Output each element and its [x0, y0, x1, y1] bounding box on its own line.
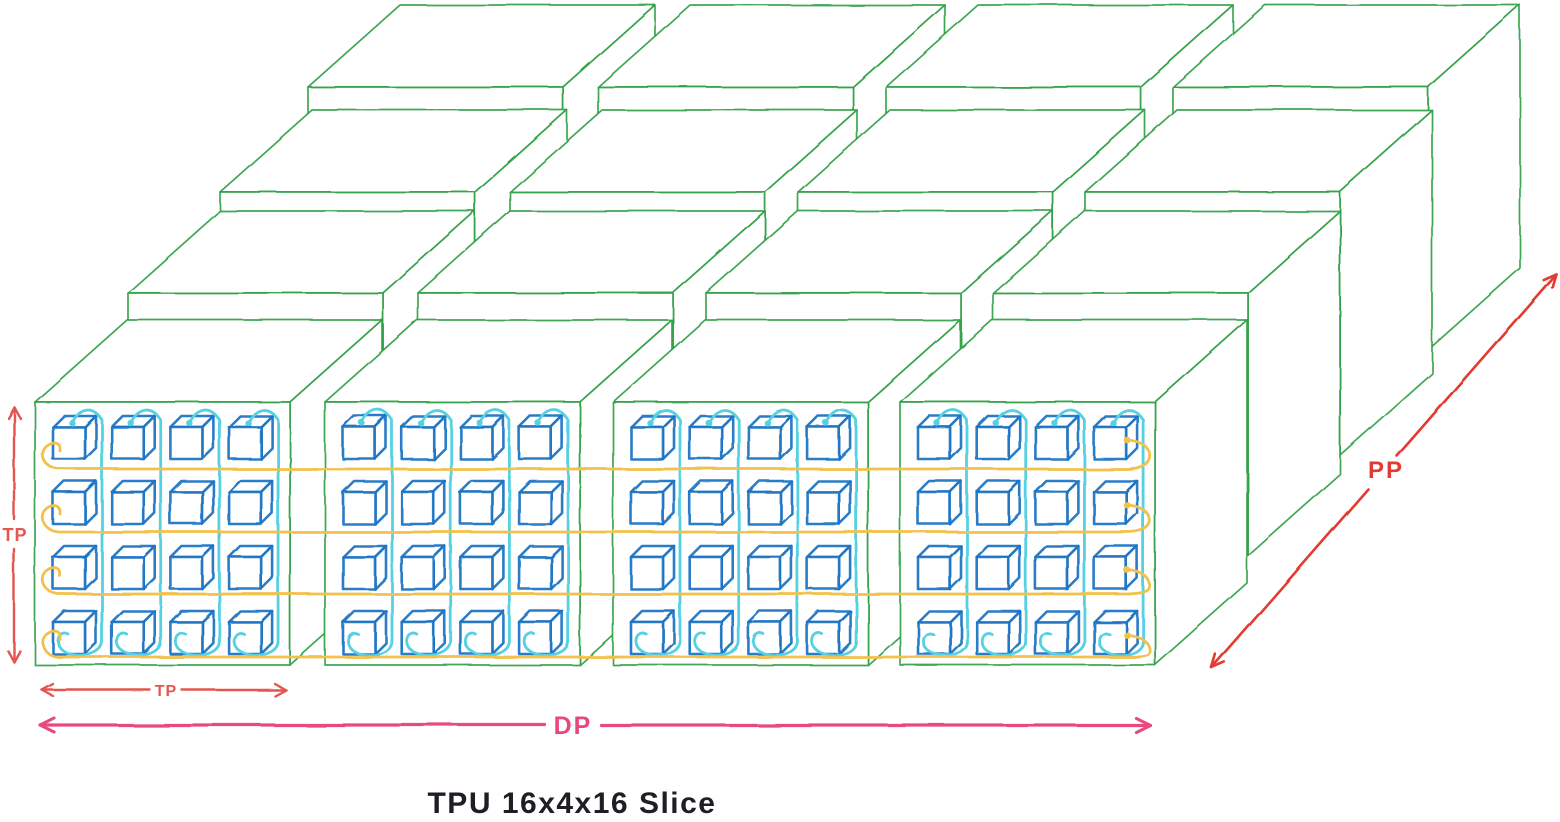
chip-front-face [807, 557, 839, 589]
chip-front-face [690, 492, 722, 524]
chip-front-face [519, 492, 551, 524]
chip-front-face [343, 492, 375, 524]
chip-front-face [1035, 557, 1067, 589]
chip-front-face [807, 492, 839, 524]
tp-ring-endpoint-dot [993, 420, 999, 426]
chip-front-face [519, 557, 551, 589]
chip-front-face [977, 427, 1009, 459]
chip-front-face [229, 557, 261, 589]
dp-axis-label: DP [554, 712, 593, 740]
chip-front-face [690, 427, 722, 459]
chip-front-face [977, 492, 1009, 524]
chip-front-face [631, 427, 663, 459]
tp-horizontal-label: TP [155, 683, 177, 700]
chip-front-face [748, 557, 780, 589]
tp-ring-endpoint-dot [823, 420, 829, 426]
tp-ring-endpoint-dot [706, 420, 712, 426]
chip-front-face [343, 427, 375, 459]
chip-front-face [402, 492, 434, 524]
tp-ring-endpoint-dot [418, 420, 424, 426]
chip-front-face [229, 492, 261, 524]
chip-front-face [977, 557, 1009, 589]
tp-ring-endpoint-dot [359, 420, 365, 426]
chip-front-face [343, 557, 375, 589]
chip-front-face [112, 492, 144, 524]
chip-front-face [690, 557, 722, 589]
chip-front-face [229, 427, 261, 459]
chip-front-face [1094, 557, 1126, 589]
tpu-slice-diagram: TP TP DP PP TPU 16x4x16 Slice [0, 0, 1560, 822]
chip-front-face [1094, 427, 1126, 459]
dp-ring-endpoint-dot [1124, 502, 1131, 509]
tp-ring-endpoint-dot [1110, 420, 1116, 426]
dp-ring-endpoint-dot [1124, 567, 1131, 574]
diagram-title: TPU 16x4x16 Slice [427, 787, 716, 820]
chip-front-face [1094, 492, 1126, 524]
chip-front-face [631, 557, 663, 589]
tp-ring-endpoint-dot [934, 420, 940, 426]
chip-front-face [748, 492, 780, 524]
chip-front-face [170, 492, 202, 524]
tp-ring-endpoint-dot [476, 420, 482, 426]
chip-front-face [460, 557, 492, 589]
chip-front-face [112, 557, 144, 589]
tp-ring-endpoint-dot [535, 420, 541, 426]
chip-front-face [112, 427, 144, 459]
chip-front-face [1035, 492, 1067, 524]
chip-front-face [807, 427, 839, 459]
chip-front-face [460, 492, 492, 524]
tp-ring-endpoint-dot [1051, 420, 1057, 426]
chip-front-face [170, 427, 202, 459]
chip-front-face [402, 427, 434, 459]
tp-ring-endpoint-dot [128, 420, 134, 426]
tp-ring-endpoint-dot [69, 420, 75, 426]
chip-front-face [519, 427, 551, 459]
chip-front-face [402, 557, 434, 589]
pp-axis-label: PP [1368, 457, 1404, 484]
chip-front-face [748, 427, 780, 459]
chip-front-face [1035, 427, 1067, 459]
tp-vertical-label: TP [2, 525, 27, 545]
chip-front-face [918, 557, 950, 589]
chip-front-face [918, 427, 950, 459]
chip-front-face [918, 492, 950, 524]
tp-ring-endpoint-dot [647, 420, 653, 426]
chip-front-face [170, 557, 202, 589]
tp-ring-endpoint-dot [764, 420, 770, 426]
tp-ring-endpoint-dot [186, 420, 192, 426]
chip-front-face [53, 557, 85, 589]
tp-ring-endpoint-dot [245, 420, 251, 426]
dp-ring-endpoint-dot [1124, 437, 1131, 444]
chip-front-face [460, 427, 492, 459]
dp-ring-endpoint-dot [1124, 632, 1131, 639]
chip-front-face [631, 492, 663, 524]
